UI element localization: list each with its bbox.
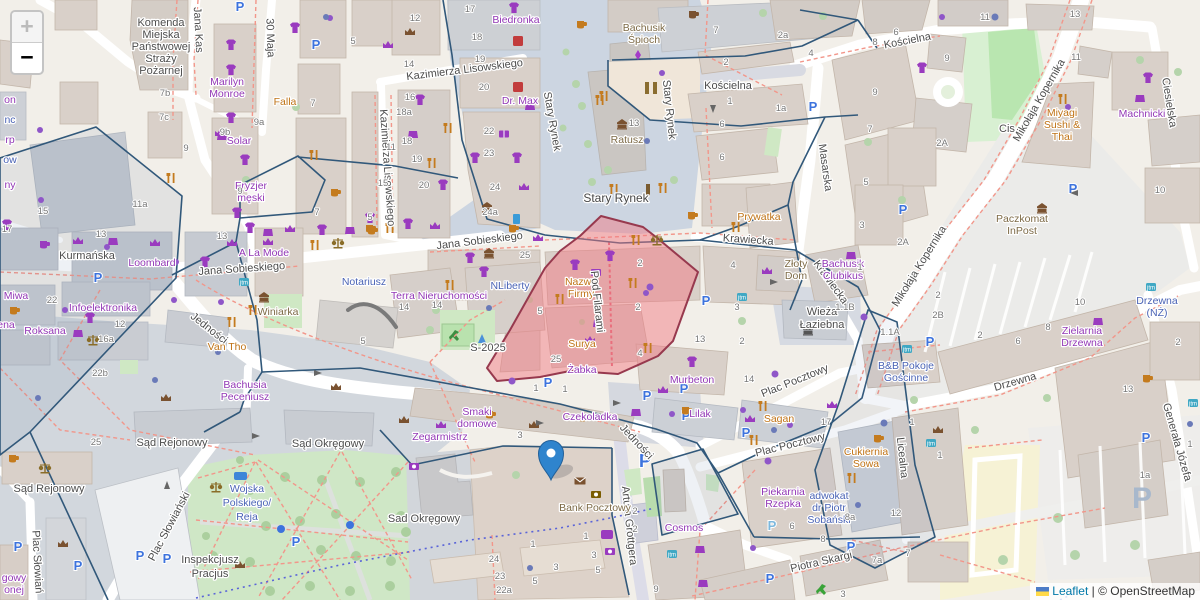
svg-text:dr Piotr: dr Piotr — [812, 502, 846, 514]
svg-text:3: 3 — [591, 550, 596, 561]
svg-text:Drzewna: Drzewna — [1136, 295, 1178, 307]
svg-text:Wieża: Wieża — [807, 306, 838, 318]
svg-text:P: P — [236, 0, 245, 14]
svg-text:P: P — [742, 425, 751, 440]
svg-text:Infoelektronika: Infoelektronika — [69, 302, 137, 314]
svg-text:(NŻ): (NŻ) — [1147, 306, 1168, 319]
svg-text:Cis: Cis — [999, 123, 1015, 135]
svg-text:Murbeton: Murbeton — [670, 374, 715, 386]
svg-text:7: 7 — [905, 548, 910, 559]
svg-text:2: 2 — [739, 336, 744, 347]
svg-text:20: 20 — [419, 180, 430, 191]
svg-text:P: P — [14, 539, 23, 554]
svg-text:1.1A: 1.1A — [880, 327, 900, 338]
svg-text:17: 17 — [821, 417, 832, 428]
svg-text:Monroe: Monroe — [209, 88, 245, 100]
svg-text:gowy: gowy — [2, 572, 27, 584]
svg-text:9: 9 — [237, 186, 242, 197]
svg-text:ena: ena — [0, 319, 15, 331]
svg-text:7: 7 — [314, 207, 319, 218]
svg-text:14: 14 — [744, 374, 755, 385]
svg-text:Sagan: Sagan — [764, 413, 795, 425]
svg-text:11a: 11a — [132, 199, 148, 210]
svg-text:1: 1 — [857, 262, 862, 273]
svg-text:6: 6 — [789, 521, 794, 532]
svg-text:P: P — [702, 293, 711, 308]
svg-text:4: 4 — [730, 260, 735, 271]
svg-text:Kościelna: Kościelna — [704, 80, 753, 92]
svg-text:P: P — [74, 558, 83, 573]
svg-text:Sąd Rejonowy: Sąd Rejonowy — [137, 437, 208, 449]
svg-text:P: P — [1132, 482, 1152, 515]
svg-text:Lilak: Lilak — [689, 408, 711, 420]
svg-text:2: 2 — [632, 524, 637, 535]
svg-text:Żabka: Żabka — [567, 363, 596, 376]
svg-text:2: 2 — [977, 330, 982, 341]
svg-text:Polskiego/: Polskiego/ — [223, 497, 272, 509]
svg-text:8: 8 — [820, 534, 825, 545]
svg-text:7a: 7a — [872, 555, 883, 566]
svg-text:Śpioch: Śpioch — [628, 33, 660, 46]
svg-text:P: P — [926, 334, 935, 349]
svg-text:1: 1 — [727, 96, 732, 107]
svg-text:25: 25 — [520, 250, 531, 261]
svg-text:7b: 7b — [160, 88, 171, 99]
svg-text:Surya: Surya — [568, 338, 596, 350]
svg-text:Sad Okręgowy: Sad Okręgowy — [388, 513, 461, 525]
svg-text:Bachusia: Bachusia — [223, 379, 266, 391]
svg-text:1a: 1a — [776, 103, 787, 114]
svg-text:ny: ny — [4, 179, 16, 191]
svg-text:P: P — [94, 270, 103, 285]
svg-text:6: 6 — [1015, 336, 1020, 347]
svg-text:24: 24 — [489, 554, 500, 565]
svg-text:6: 6 — [719, 152, 724, 163]
svg-text:3: 3 — [517, 430, 522, 441]
svg-text:S-2025: S-2025 — [470, 342, 505, 354]
svg-text:19: 19 — [475, 54, 486, 65]
svg-text:11: 11 — [1071, 52, 1081, 63]
svg-text:Miwa: Miwa — [4, 290, 29, 302]
svg-text:Paczkomat: Paczkomat — [996, 213, 1048, 225]
svg-text:22a: 22a — [496, 585, 513, 596]
svg-text:23: 23 — [484, 148, 495, 159]
svg-text:22: 22 — [47, 295, 58, 306]
svg-text:Biedronka: Biedronka — [492, 14, 539, 26]
svg-text:P: P — [163, 551, 172, 566]
svg-text:3: 3 — [859, 220, 864, 231]
svg-text:Pracjus: Pracjus — [192, 568, 229, 580]
svg-text:2: 2 — [723, 57, 728, 68]
svg-text:Sąd Okręgowy: Sąd Okręgowy — [292, 438, 365, 450]
svg-text:7: 7 — [310, 98, 315, 109]
svg-text:Miyagi: Miyagi — [1047, 107, 1077, 119]
svg-text:9: 9 — [944, 53, 949, 64]
svg-text:P: P — [292, 534, 301, 549]
svg-text:10: 10 — [1155, 185, 1166, 196]
svg-text:Drzewna: Drzewna — [1061, 337, 1103, 349]
svg-text:P: P — [643, 388, 652, 403]
svg-text:1: 1 — [562, 384, 567, 395]
svg-text:6: 6 — [893, 27, 898, 38]
svg-text:Reja: Reja — [236, 511, 258, 523]
svg-text:B&B Pokoje: B&B Pokoje — [878, 360, 934, 372]
svg-text:18: 18 — [472, 32, 483, 43]
svg-text:Kurmańska: Kurmańska — [59, 250, 116, 262]
svg-text:Dom: Dom — [785, 270, 807, 282]
svg-text:25: 25 — [551, 354, 562, 365]
svg-text:14: 14 — [404, 59, 415, 70]
svg-text:Czekoladka: Czekoladka — [563, 411, 618, 423]
svg-text:Roksana: Roksana — [24, 325, 66, 337]
svg-text:Straży: Straży — [145, 53, 177, 65]
svg-text:2: 2 — [635, 302, 640, 313]
svg-text:Rzepka: Rzepka — [765, 498, 801, 510]
svg-text:13: 13 — [96, 229, 107, 240]
svg-text:1: 1 — [530, 539, 535, 550]
svg-text:Złoty: Złoty — [785, 258, 809, 270]
svg-text:Inspekcjusz: Inspekcjusz — [181, 554, 238, 566]
svg-text:Komenda: Komenda — [137, 17, 185, 29]
svg-text:Gościnne: Gościnne — [884, 372, 929, 384]
svg-text:Sąd Rejonowy: Sąd Rejonowy — [14, 483, 85, 495]
svg-text:Państwowej: Państwowej — [132, 41, 191, 53]
svg-text:13: 13 — [695, 334, 706, 345]
svg-text:4: 4 — [808, 48, 813, 59]
svg-text:7c: 7c — [159, 112, 169, 123]
svg-text:23: 23 — [495, 571, 506, 582]
svg-text:Dr. Max: Dr. Max — [502, 95, 539, 107]
svg-text:15: 15 — [378, 178, 389, 189]
svg-text:11: 11 — [386, 142, 396, 153]
svg-text:Ratusz: Ratusz — [611, 134, 644, 146]
svg-text:Bachusik: Bachusik — [623, 22, 666, 34]
svg-text:5: 5 — [595, 565, 600, 576]
svg-text:20: 20 — [479, 82, 490, 93]
svg-text:16: 16 — [405, 92, 416, 103]
svg-text:25: 25 — [91, 437, 102, 448]
svg-text:17: 17 — [465, 4, 476, 15]
svg-text:5: 5 — [537, 306, 542, 317]
svg-text:Peceniusz: Peceniusz — [221, 391, 269, 403]
svg-text:Machnicki: Machnicki — [1119, 108, 1166, 120]
svg-text:Smaki: Smaki — [462, 406, 491, 418]
svg-text:onej: onej — [4, 584, 24, 596]
svg-text:9b: 9b — [220, 127, 231, 138]
svg-text:Notariusz: Notariusz — [342, 276, 386, 288]
svg-text:Stary Rynek: Stary Rynek — [583, 191, 649, 205]
svg-text:12: 12 — [891, 508, 902, 519]
svg-text:rp: rp — [5, 134, 14, 146]
svg-text:1: 1 — [937, 450, 942, 461]
svg-text:Marilyn: Marilyn — [210, 76, 244, 88]
svg-text:1: 1 — [909, 417, 914, 428]
svg-text:9: 9 — [183, 143, 188, 154]
svg-text:18: 18 — [402, 136, 413, 147]
svg-text:domowe: domowe — [457, 418, 497, 430]
svg-text:13: 13 — [629, 118, 640, 129]
svg-text:8a: 8a — [845, 512, 856, 523]
svg-text:Pożarnej: Pożarnej — [139, 65, 182, 77]
svg-text:Cukiernia: Cukiernia — [844, 446, 889, 458]
svg-text:16a: 16a — [98, 334, 115, 345]
svg-text:15: 15 — [38, 206, 49, 217]
svg-text:9: 9 — [653, 584, 658, 595]
svg-text:P: P — [544, 375, 553, 390]
svg-text:1: 1 — [533, 383, 538, 394]
svg-text:P: P — [809, 99, 818, 114]
svg-text:2A: 2A — [897, 237, 909, 248]
svg-text:ow: ow — [3, 154, 17, 166]
svg-text:adwokat: adwokat — [809, 490, 848, 502]
svg-text:nc: nc — [4, 114, 15, 126]
svg-text:Thai: Thai — [1052, 131, 1072, 143]
svg-text:2: 2 — [637, 258, 642, 269]
svg-text:Jana Kas: Jana Kas — [191, 7, 205, 54]
svg-text:24a: 24a — [482, 207, 499, 218]
svg-text:Bank Pocztowy: Bank Pocztowy — [559, 502, 632, 514]
svg-text:P: P — [766, 571, 775, 586]
svg-text:Prywatka: Prywatka — [737, 211, 780, 223]
svg-text:Loombard: Loombard — [128, 257, 175, 269]
svg-text:30 Maja: 30 Maja — [263, 18, 276, 58]
svg-text:1: 1 — [583, 531, 588, 542]
svg-text:14: 14 — [432, 300, 443, 311]
svg-text:2: 2 — [1175, 337, 1180, 348]
svg-text:2A: 2A — [936, 138, 948, 149]
svg-text:Solar: Solar — [227, 135, 252, 147]
svg-text:1.1B: 1.1B — [835, 302, 855, 313]
svg-text:22b: 22b — [92, 368, 108, 379]
svg-text:14: 14 — [399, 302, 410, 313]
svg-text:Sowa: Sowa — [853, 458, 879, 470]
svg-text:3: 3 — [734, 302, 739, 313]
svg-text:2a: 2a — [778, 30, 789, 41]
svg-text:6: 6 — [719, 119, 724, 130]
svg-text:1: 1 — [1187, 439, 1192, 450]
svg-text:A La Mode: A La Mode — [239, 247, 289, 259]
svg-text:18a: 18a — [396, 107, 413, 118]
svg-text:Łaziebna: Łaziebna — [800, 319, 846, 331]
svg-text:P: P — [312, 37, 321, 52]
svg-text:5: 5 — [367, 212, 372, 223]
svg-text:3: 3 — [553, 562, 558, 573]
svg-text:8: 8 — [1045, 322, 1050, 333]
svg-text:NLiberty: NLiberty — [490, 280, 530, 292]
svg-text:7: 7 — [713, 25, 718, 36]
svg-text:7: 7 — [867, 124, 872, 135]
svg-text:19: 19 — [412, 154, 423, 165]
svg-text:Zielarnia: Zielarnia — [1062, 325, 1102, 337]
svg-text:Falla: Falla — [274, 96, 297, 108]
svg-text:3: 3 — [840, 589, 845, 600]
svg-text:5: 5 — [360, 336, 365, 347]
svg-text:Miejska: Miejska — [142, 29, 180, 41]
svg-text:P: P — [1142, 430, 1151, 445]
svg-text:5: 5 — [350, 36, 355, 47]
svg-text:13: 13 — [1123, 384, 1134, 395]
svg-text:4: 4 — [637, 348, 642, 359]
svg-text:Piekarnia: Piekarnia — [761, 486, 805, 498]
svg-text:13: 13 — [217, 231, 228, 242]
svg-text:12: 12 — [115, 319, 126, 330]
svg-text:12: 12 — [410, 13, 421, 24]
svg-text:9a: 9a — [254, 117, 265, 128]
svg-text:P: P — [768, 518, 777, 533]
svg-text:5: 5 — [532, 576, 537, 587]
svg-text:1a: 1a — [1140, 470, 1151, 481]
svg-text:InPost: InPost — [1007, 225, 1037, 237]
svg-text:Cosmos: Cosmos — [665, 522, 704, 534]
svg-text:2: 2 — [935, 290, 940, 301]
svg-text:9: 9 — [872, 87, 877, 98]
svg-text:13: 13 — [1070, 9, 1081, 20]
svg-text:17: 17 — [2, 224, 13, 235]
svg-text:P: P — [899, 202, 908, 217]
svg-text:Wojska: Wojska — [230, 483, 264, 495]
svg-text:24: 24 — [490, 182, 501, 193]
svg-text:5: 5 — [863, 177, 868, 188]
svg-text:22: 22 — [484, 126, 495, 137]
svg-text:11: 11 — [980, 12, 990, 23]
svg-text:P: P — [136, 548, 145, 563]
svg-text:10: 10 — [1075, 297, 1086, 308]
svg-text:on: on — [4, 94, 16, 106]
svg-text:Winiarka: Winiarka — [258, 306, 299, 318]
svg-text:Van Tho: Van Tho — [208, 341, 247, 353]
svg-text:2B: 2B — [932, 310, 944, 321]
svg-text:Zegarmistrz: Zegarmistrz — [412, 431, 467, 443]
svg-text:8: 8 — [872, 37, 877, 48]
svg-text:Sushi &: Sushi & — [1044, 119, 1080, 131]
svg-text:2: 2 — [632, 506, 637, 517]
